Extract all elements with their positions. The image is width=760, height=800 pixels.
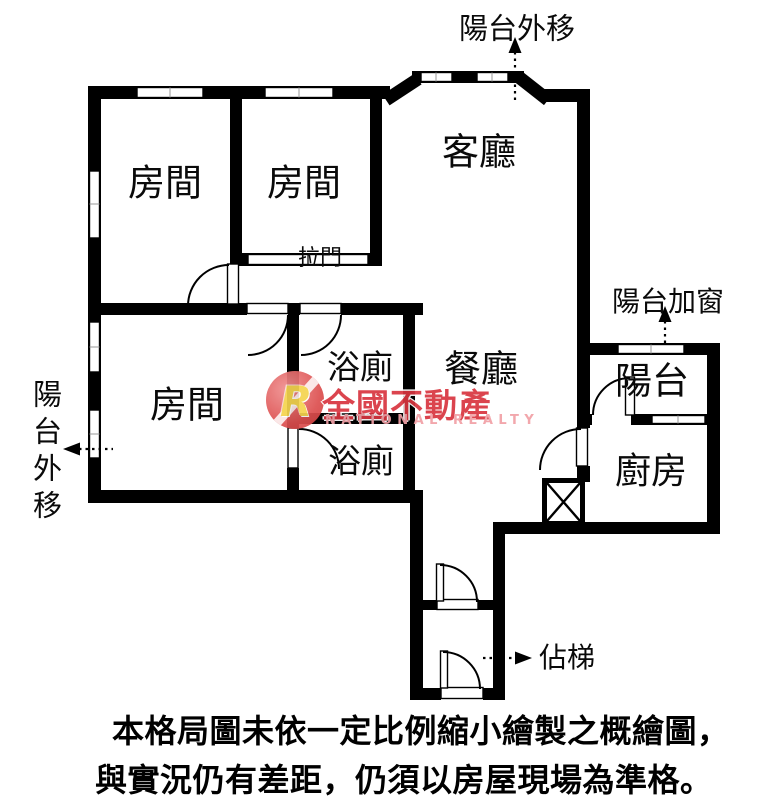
- window-room1-left: [90, 171, 100, 238]
- door-corridor-upper: [437, 564, 479, 610]
- duct-x-box: [545, 481, 583, 524]
- label-balcony: 陽台: [615, 363, 689, 400]
- window-room2-top: [265, 88, 333, 98]
- arrow-right-stairs-icon: [483, 652, 532, 665]
- door-room1: [188, 264, 239, 306]
- watermark-logo-letter: R: [280, 377, 312, 426]
- disclaimer-line2: 與實況仍有差距，仍須以房屋現場為準格。: [95, 755, 713, 800]
- floorplan-page: 陽台外移 房間 房間 客廳 拉門 房間 浴廁 浴廁 餐廳 陽台加窗 陽台 廚房 …: [0, 0, 760, 800]
- window-balcony-top: [618, 345, 684, 354]
- label-room-top-mid: 房間: [267, 165, 341, 202]
- label-balcony-add-window: 陽台加窗: [612, 288, 724, 316]
- label-kitchen: 廚房: [615, 454, 687, 490]
- label-sliding-door: 拉門: [298, 248, 342, 270]
- disclaimer-line1: 本格局圖未依一定比例縮小繪製之概繪圖，: [112, 706, 730, 752]
- window-room3-left-1: [90, 322, 100, 372]
- label-balcony-out-left: 陽台外移: [31, 379, 60, 527]
- window-bay-2: [477, 73, 508, 82]
- door-kitchen: [540, 428, 588, 470]
- label-bath-bottom: 浴廁: [328, 445, 394, 478]
- arrow-up-balcony-out-icon: [509, 37, 522, 102]
- window-balcony-kitchen: [652, 416, 705, 424]
- label-balcony-out-top: 陽台外移: [459, 15, 575, 44]
- window-room3-left-2: [90, 410, 100, 458]
- label-room-bottom-left: 房間: [150, 387, 224, 424]
- window-bay-1: [421, 73, 452, 82]
- label-living-room: 客廳: [442, 134, 516, 171]
- window-room1-top: [137, 88, 203, 98]
- watermark: R 全國不動產 NATIONAL REALTY: [266, 366, 506, 430]
- door-corridor-lower: [441, 651, 484, 699]
- watermark-brand-english: NATIONAL REALTY: [325, 413, 539, 428]
- label-room-top-left: 房間: [128, 165, 202, 202]
- watermark-logo-icon: R: [266, 371, 324, 429]
- door-room3: [247, 304, 288, 356]
- label-stairs: 佔梯: [539, 644, 595, 672]
